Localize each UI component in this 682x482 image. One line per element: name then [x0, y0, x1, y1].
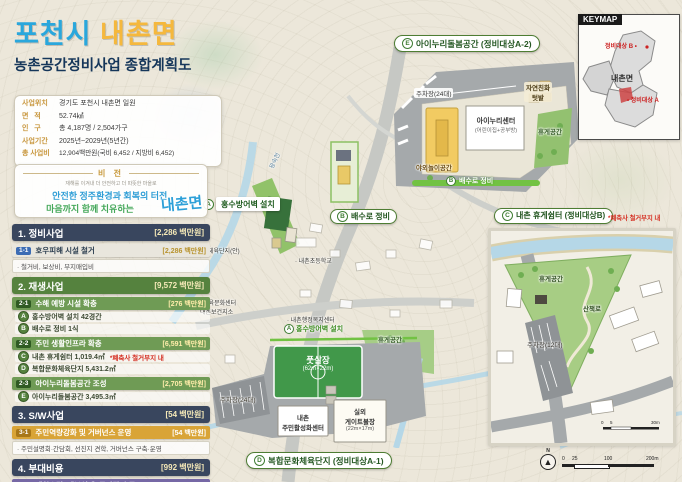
row-1-1: 1-1 호우피해 시설 철거 [2,286 백만원] [12, 244, 210, 257]
demolition-note: *폐축사 철거부지 내 [110, 352, 164, 362]
row-2-3: 2-3 아이누리돌봄공간 조성 [2,705 백만원] [12, 377, 210, 390]
drain-banner: B 배수로 정비 [446, 176, 493, 186]
keymap-region-label: 내촌면 [611, 73, 633, 84]
sports-site-label: 체육단지(안) [208, 246, 240, 255]
info-row: 사업위치경기도 포천시 내촌면 일원 [22, 98, 214, 111]
row-2-2: 2-2 주민 생활인프라 확충 [6,591 백만원] [12, 337, 210, 350]
keymap-target-a: • 정비대상 A [627, 95, 659, 104]
sports-complex-pill: D 복합문화체육단지 (정비대상A-1) [246, 449, 392, 469]
poster-header: 포천시 내촌면 농촌공간정비사업 종합계획도 [14, 12, 191, 75]
info-row: 인 구총 4,187명 / 2,504가구 [22, 123, 214, 136]
keymap-title: KEYMAP [578, 14, 622, 25]
flood-wall-note: A 홍수방어벽 설치 [284, 324, 343, 334]
page-title: 포천시 내촌면 [14, 12, 191, 51]
circle-b-icon: B [337, 211, 348, 222]
section-1-note: · 철거비, 보상비, 부지매입비 [12, 259, 210, 273]
list-item: B 배수로 정비 1식 [15, 324, 210, 335]
circle-d-icon: D [18, 363, 29, 374]
circle-c-icon: C [502, 210, 513, 221]
callout-rest-shelter: C 내촌 휴게쉼터 (정비대상B) *폐축사 철거부지 내 [486, 202, 680, 448]
circle-d-icon: D [254, 455, 265, 466]
trail-label: 산책로 [583, 303, 601, 313]
vision-header: 비 전 [23, 168, 199, 179]
list-item: C 내촌 휴게쉼터 1,019.4㎡ *폐축사 철거부지 내 [15, 352, 210, 363]
section-2-header: 2. 재생사업 [9,572 백만원] [12, 277, 210, 294]
parking-label: 주차장(24대) [414, 88, 453, 98]
vision-line2: 마음까지 함께 치유하는 [15, 202, 165, 215]
callout-childcare: E 아이누리돌봄공간 (정비대상A-2) 주차장(24대) [388, 30, 584, 202]
info-row: 총 사업비12,904백만원(국비 6,452 / 지방비 6,452) [22, 148, 214, 161]
naechon-logo: 내촌면 [160, 191, 203, 216]
gateball-label: 실외 게이트볼장 (22m×17m) [334, 406, 386, 432]
info-row: 면 적52.74㎢ [22, 111, 214, 124]
keymap-target-b: 정비대상 B • [605, 41, 637, 50]
school-label: · 내촌초등학교 [295, 256, 332, 265]
keymap-panel: KEYMAP 정비대상 B • 내촌면 • 정비대상 A [578, 14, 680, 140]
flood-wall-pin: A 홍수방어벽 설치 [203, 197, 280, 211]
circle-e-icon: E [402, 38, 413, 49]
mini-scale-1: 5 [610, 420, 613, 425]
circle-b-icon: B [446, 176, 456, 186]
row-3-1: 3-1 주민역량강화 및 거버넌스 운영 [54 백만원] [12, 426, 210, 439]
list-item: A 홍수방어벽 설치 42경간 [15, 312, 210, 323]
parking-label: 주차장(12대) [527, 339, 562, 349]
rest-area-label: 휴게공간 [538, 126, 562, 136]
section-3-note: · 주민설명회·간담회, 선진지 견학, 거버넌스 구축·운영 [12, 441, 210, 455]
callout-rest-title: 내촌 휴게쉼터 (정비대상B) [516, 210, 605, 221]
vision-tagline: 재해를 이겨내 더 안전하고 더 따뜻한 마을로 [15, 180, 207, 187]
plan-poster: 왕숙천 체육단지(안) · 내촌초등학교 · 내촌행정복지센터 내촌교육문화센터… [0, 0, 682, 482]
page-subtitle: 농촌공간정비사업 종합계획도 [14, 54, 191, 75]
circle-a-icon: A [18, 311, 29, 322]
rest-site-plan [491, 231, 673, 443]
list-item: E 아이누리돌봄공간 3,495.3㎡ [15, 392, 210, 403]
compass-north-icon: N ▲ [540, 448, 556, 470]
parking-label: 주차장(24대) [220, 394, 255, 404]
callout-childcare-title: 아이누리돌봄공간 (정비대상A-2) [416, 38, 532, 50]
section-4-header: 4. 부대비용 [992 백만원] [12, 459, 210, 476]
project-info-card: 사업위치경기도 포천시 내촌면 일원 면 적52.74㎢ 인 구총 4,187명… [14, 95, 222, 167]
circle-b-icon: B [18, 323, 29, 334]
list-item: D 복합문화체육단지 5,431.2㎡ [15, 364, 210, 375]
rest-shelter-frame: 휴게공간 산책로 주차장(12대) 0 5 30m [488, 228, 676, 446]
admin-center-label: · 내촌행정복지센터 [287, 315, 335, 324]
rest-area-label: 휴게공간 [539, 273, 563, 283]
center-label: 아이누리센터 (어린이집+공부방) [470, 116, 522, 134]
circle-a-icon: A [284, 324, 294, 334]
callout-sports-complex: A 홍수방어벽 설치 풋살장 (62m×22m) 주차장(24대) 내촌 주민활… [212, 330, 434, 448]
drain-pin: B 배수로 정비 [330, 205, 397, 224]
mini-scale-0: 0 [601, 420, 604, 425]
section-3-header: 3. S/W사업 [54 백만원] [12, 406, 210, 423]
section-1-header: 1. 정비사업 [2,286 백만원] [12, 224, 210, 241]
row-2-1: 2-1 수해 예방 시설 확충 [276 백만원] [12, 297, 210, 310]
futsal-label: 풋살장 (62m×22m) [286, 354, 350, 372]
circle-e-icon: E [18, 391, 29, 402]
community-center-label: 내촌 주민활성화센터 [278, 412, 328, 432]
rest-area-label: 휴게공간 [378, 334, 402, 344]
business-list: 1. 정비사업 [2,286 백만원] 1-1 호우피해 시설 철거 [2,28… [12, 220, 210, 482]
play-area-label: 야외놀이공간 [416, 162, 452, 172]
scale-bar: 0 25 100 200m [562, 456, 660, 472]
mini-scale-2: 30m [651, 420, 660, 425]
demolition-note: *폐축사 철거부지 내 [608, 213, 660, 222]
circle-c-icon: C [18, 351, 29, 362]
garden-label: 자연친화 텃밭 [524, 82, 552, 102]
info-row: 사업기간2025년~2029년(5년간) [22, 136, 214, 149]
vision-card: 비 전 재해를 이겨내 더 안전하고 더 따뜻한 마을로 안전한 정주환경과 회… [14, 164, 208, 218]
